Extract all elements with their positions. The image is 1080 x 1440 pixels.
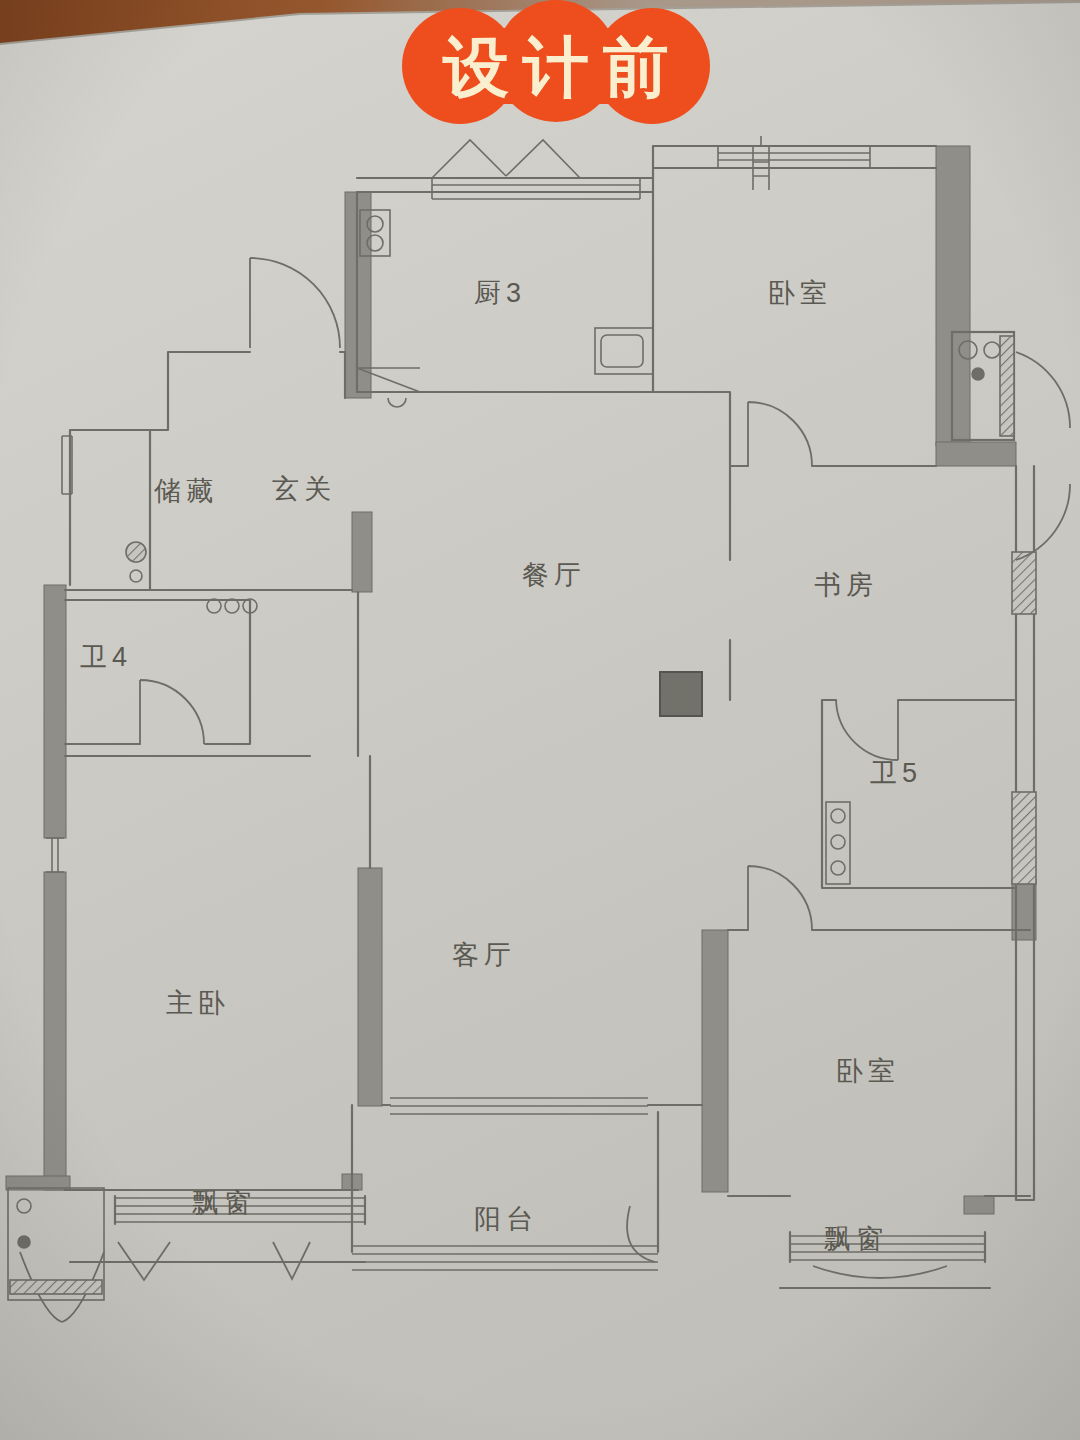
floor-plan-svg: 厨3 卧室 储藏 玄关 餐厅 书房 卫4 卫5 主卧 客厅 卧室 飘窗 阳台 飘… bbox=[0, 0, 1080, 1440]
photo-vignette bbox=[0, 0, 1080, 1440]
photo-of-floor-plan: 厨3 卧室 储藏 玄关 餐厅 书房 卫4 卫5 主卧 客厅 卧室 飘窗 阳台 飘… bbox=[0, 0, 1080, 1440]
